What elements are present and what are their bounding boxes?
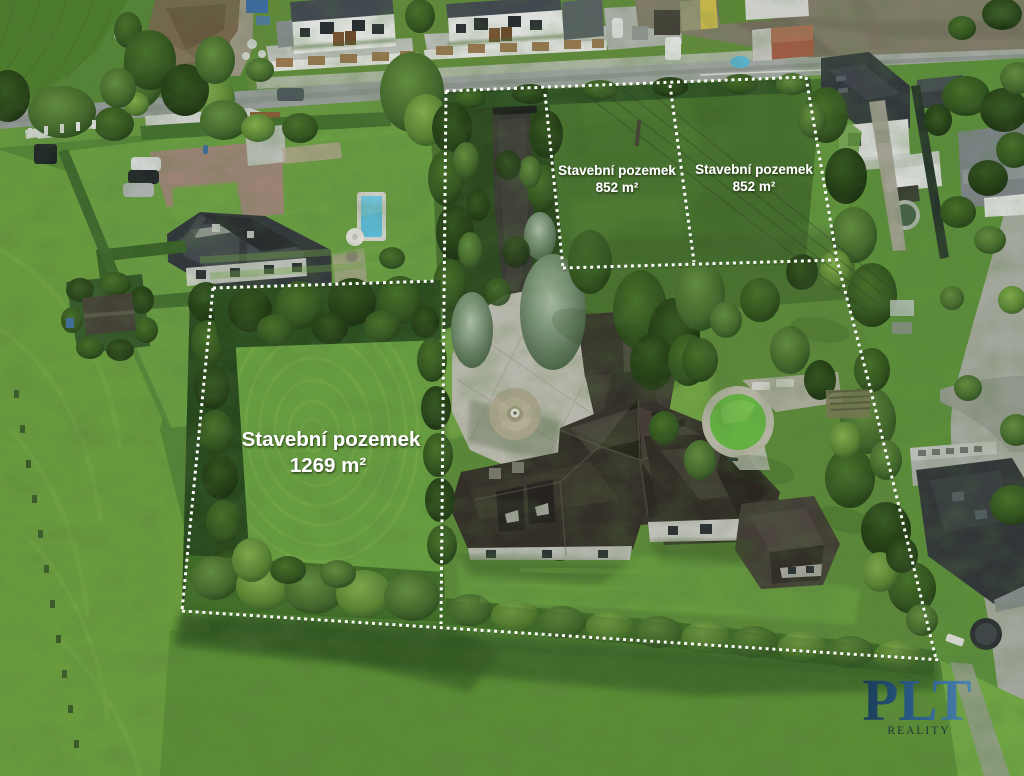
svg-text:852 m²: 852 m² — [596, 180, 639, 195]
svg-text:Stavební pozemek: Stavební pozemek — [242, 428, 421, 451]
svg-text:PLT: PLT — [862, 667, 971, 733]
svg-text:852 m²: 852 m² — [733, 179, 776, 194]
svg-text:REALITY: REALITY — [887, 725, 950, 737]
svg-text:Stavební pozemek: Stavební pozemek — [558, 163, 676, 178]
svg-text:Stavební pozemek: Stavební pozemek — [695, 162, 813, 177]
svg-text:1269 m²: 1269 m² — [290, 454, 367, 477]
